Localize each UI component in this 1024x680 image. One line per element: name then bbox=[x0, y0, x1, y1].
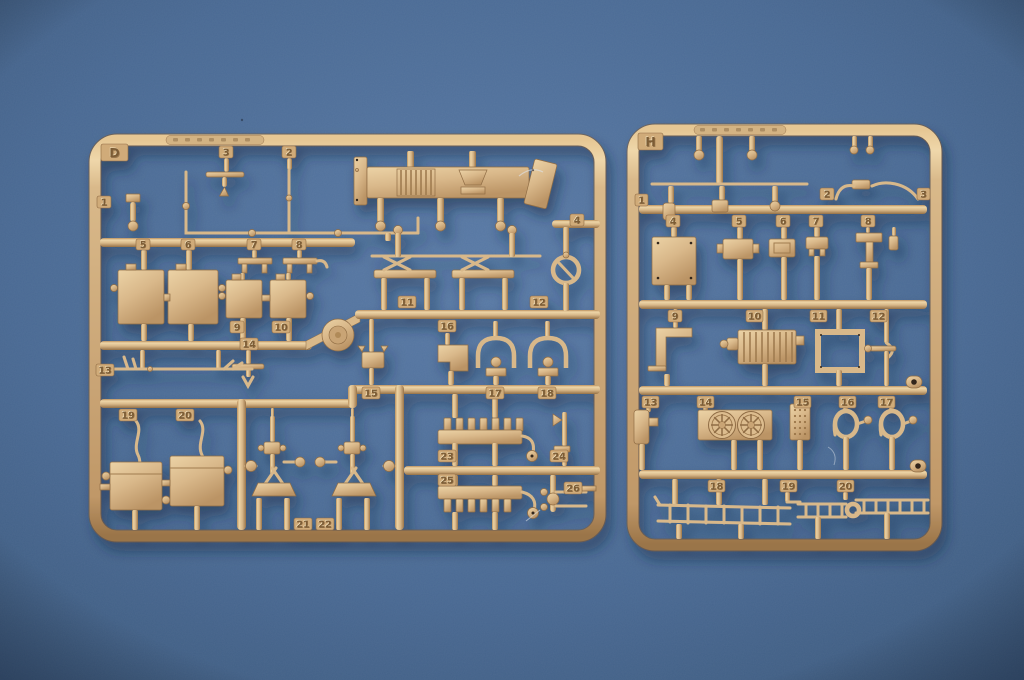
svg-text:12: 12 bbox=[532, 297, 545, 308]
part-number-tab: 13 bbox=[96, 364, 114, 376]
part-number-tab: 23 bbox=[438, 450, 456, 462]
part-number-tab: 8 bbox=[292, 239, 306, 251]
svg-text:25: 25 bbox=[440, 475, 453, 486]
svg-text:14: 14 bbox=[699, 397, 713, 408]
svg-text:7: 7 bbox=[813, 216, 820, 227]
svg-text:7: 7 bbox=[251, 240, 258, 251]
part-number-tab: 19 bbox=[780, 480, 797, 492]
svg-text:6: 6 bbox=[780, 216, 787, 227]
svg-text:10: 10 bbox=[748, 311, 762, 322]
part-number-tab: 12 bbox=[530, 296, 548, 308]
svg-text:19: 19 bbox=[782, 481, 795, 492]
part-number-tab: 20 bbox=[176, 409, 194, 421]
part-number-tab: 26 bbox=[564, 482, 582, 494]
sprue-d-molded-plate bbox=[166, 136, 264, 145]
sprue-d-wheel-part bbox=[322, 319, 354, 351]
svg-text:8: 8 bbox=[865, 216, 872, 227]
part-number-tab: 7 bbox=[809, 215, 823, 227]
svg-text:17: 17 bbox=[488, 388, 501, 399]
part-number-tab: 11 bbox=[810, 310, 827, 322]
svg-text:18: 18 bbox=[710, 481, 724, 492]
part-number-tab: 16 bbox=[438, 320, 456, 332]
svg-text:19: 19 bbox=[121, 410, 134, 421]
part-number-tab: 17 bbox=[486, 387, 504, 399]
part-number-tab: 10 bbox=[746, 310, 763, 322]
photo-stage: D bbox=[0, 0, 1024, 680]
part-number-tab: 12 bbox=[870, 310, 887, 322]
svg-text:5: 5 bbox=[736, 216, 743, 227]
part-number-tab: 18 bbox=[538, 387, 556, 399]
svg-text:16: 16 bbox=[841, 397, 855, 408]
part-number-tab: 4 bbox=[570, 214, 584, 226]
svg-text:17: 17 bbox=[880, 397, 893, 408]
part-number-tab: 16 bbox=[839, 396, 856, 408]
sprue-h-letter-tab: H bbox=[638, 133, 663, 150]
part-number-tab: 6 bbox=[181, 239, 195, 251]
part-number-tab: 5 bbox=[732, 215, 746, 227]
svg-text:9: 9 bbox=[234, 322, 241, 333]
part-number-tab: 9 bbox=[230, 321, 244, 333]
svg-text:3: 3 bbox=[223, 147, 230, 158]
part-number-tab: 2 bbox=[282, 146, 296, 158]
sprue-photo: D bbox=[0, 0, 1024, 680]
sprue-h-molded-plate bbox=[694, 126, 786, 135]
svg-text:14: 14 bbox=[242, 339, 256, 350]
part-number-tab: 5 bbox=[136, 239, 150, 251]
svg-text:8: 8 bbox=[296, 240, 303, 251]
part-number-tab: 1 bbox=[635, 194, 648, 206]
part-number-tab: 10 bbox=[272, 321, 290, 333]
part-number-tab: 14 bbox=[697, 396, 714, 408]
svg-text:2: 2 bbox=[286, 147, 293, 158]
part-number-tab: 20 bbox=[837, 480, 854, 492]
part-number-tab: 8 bbox=[861, 215, 875, 227]
background-speck bbox=[241, 119, 243, 121]
part-number-tab: 22 bbox=[316, 518, 334, 530]
part-number-tab: 13 bbox=[642, 396, 659, 408]
vignette bbox=[0, 0, 1024, 680]
part-number-tab: 15 bbox=[362, 387, 380, 399]
svg-text:2: 2 bbox=[824, 189, 831, 200]
part-number-tab: 3 bbox=[917, 188, 930, 200]
svg-text:5: 5 bbox=[140, 240, 147, 251]
svg-text:20: 20 bbox=[839, 481, 853, 492]
svg-text:4: 4 bbox=[574, 215, 581, 226]
part-number-tab: 9 bbox=[668, 310, 682, 322]
svg-text:9: 9 bbox=[672, 311, 679, 322]
svg-text:21: 21 bbox=[296, 519, 309, 530]
svg-text:20: 20 bbox=[178, 410, 192, 421]
svg-text:13: 13 bbox=[644, 397, 657, 408]
part-number-tab: 11 bbox=[398, 296, 416, 308]
svg-text:15: 15 bbox=[796, 397, 809, 408]
svg-text:16: 16 bbox=[440, 321, 454, 332]
svg-text:4: 4 bbox=[670, 216, 677, 227]
part-number-tab: 2 bbox=[820, 188, 834, 200]
svg-text:11: 11 bbox=[812, 311, 825, 322]
svg-text:22: 22 bbox=[318, 519, 331, 530]
sprue-d-letter-tab: D bbox=[101, 144, 128, 161]
part-number-tab: 1 bbox=[97, 196, 111, 208]
svg-text:6: 6 bbox=[185, 240, 192, 251]
part-number-tab: 15 bbox=[794, 396, 811, 408]
part-number-tab: 17 bbox=[878, 396, 895, 408]
svg-text:1: 1 bbox=[101, 197, 108, 208]
part-number-tab: 18 bbox=[708, 480, 725, 492]
svg-text:H: H bbox=[645, 134, 655, 149]
svg-text:26: 26 bbox=[566, 483, 580, 494]
svg-text:10: 10 bbox=[274, 322, 288, 333]
svg-text:11: 11 bbox=[400, 297, 413, 308]
svg-text:1: 1 bbox=[638, 195, 645, 206]
svg-text:18: 18 bbox=[540, 388, 554, 399]
part-number-tab: 14 bbox=[240, 338, 258, 350]
part-number-tab: 6 bbox=[776, 215, 790, 227]
part-number-tab: 21 bbox=[294, 518, 312, 530]
part-number-tab: 3 bbox=[219, 146, 233, 158]
svg-text:3: 3 bbox=[920, 189, 927, 200]
part-number-tab: 7 bbox=[247, 239, 261, 251]
part-number-tab: 24 bbox=[550, 450, 568, 462]
svg-text:13: 13 bbox=[98, 365, 111, 376]
part-number-tab: 19 bbox=[119, 409, 137, 421]
svg-text:D: D bbox=[109, 145, 119, 160]
svg-text:24: 24 bbox=[552, 451, 566, 462]
svg-text:12: 12 bbox=[872, 311, 885, 322]
part-number-tab: 25 bbox=[438, 474, 456, 486]
part-number-tab: 4 bbox=[666, 215, 680, 227]
svg-text:23: 23 bbox=[440, 451, 453, 462]
svg-text:15: 15 bbox=[364, 388, 377, 399]
